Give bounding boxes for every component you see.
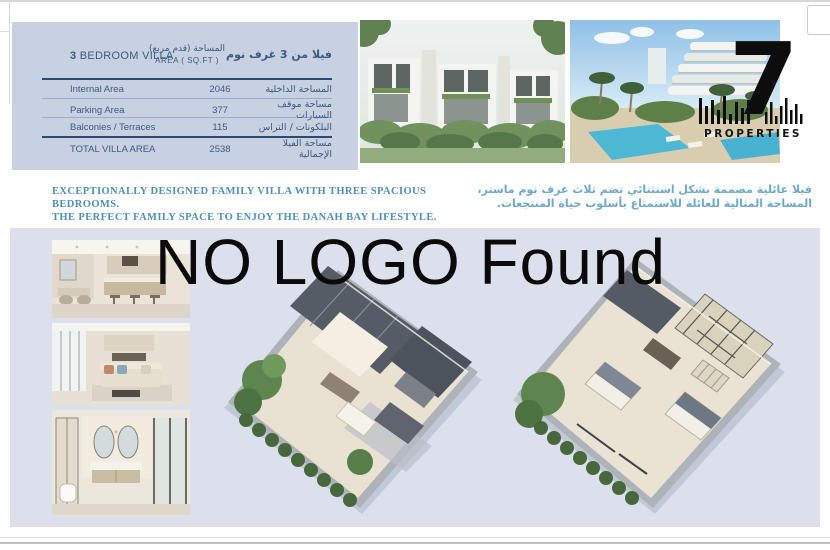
row-label-ar: مساحة الفيلا الإجمالية <box>250 138 332 160</box>
area-spec-table: 3 BEDROOM VILLA المساحة (قدم مربع) AREA … <box>12 22 358 170</box>
logo-seven-glyph: 7 <box>729 26 799 138</box>
tagline-arabic-line2: المساحة المثالية للعائلة للاستمتاع بأسلو… <box>452 197 812 211</box>
table-row-balconies: Balconies / Terraces 115 البلكونات / الت… <box>42 118 332 136</box>
row-value: 2046 <box>190 84 250 95</box>
row-label-ar: المساحة الداخلية <box>250 84 332 95</box>
table-row-internal-area: Internal Area 2046 المساحة الداخلية <box>42 80 332 98</box>
villa-title-ar: فيلا من 3 غرف نوم <box>226 48 332 61</box>
logo-brand-name: PROPERTIES <box>704 128 802 140</box>
bathroom-interior-photo <box>52 410 190 520</box>
row-label-ar: مساحة موقف السيارات <box>250 99 332 121</box>
row-label-en: Parking Area <box>70 105 190 116</box>
table-row-total-area: TOTAL VILLA AREA 2538 مساحة الفيلا الإجم… <box>42 138 332 156</box>
row-label-en: Internal Area <box>70 84 190 95</box>
page-top-edge <box>0 0 830 2</box>
corner-note-box <box>807 5 830 35</box>
brochure-page: 3 BEDROOM VILLA المساحة (قدم مربع) AREA … <box>0 0 830 550</box>
tagline-english-line2: THE PERFECT FAMILY SPACE TO ENJOY THE DA… <box>52 211 472 224</box>
crop-mark-horizontal <box>0 31 10 32</box>
exterior-villas-photo <box>360 20 565 163</box>
seven-properties-logo: 7 PROPERTIES <box>697 26 809 140</box>
tagline-arabic-line1: فيلا عائلية مصممة بشكل استثنائي تضم ثلاث… <box>452 183 812 197</box>
row-label-en: TOTAL VILLA AREA <box>70 144 190 155</box>
window-bottom-edge <box>0 542 830 544</box>
no-logo-watermark: NO LOGO Found <box>155 228 666 296</box>
row-label-ar: البلكونات / التراس <box>250 122 332 133</box>
tagline-english-line1: EXCEPTIONALLY DESIGNED FAMILY VILLA WITH… <box>52 185 472 211</box>
row-label-en: Balconies / Terraces <box>70 122 190 133</box>
tagline-english: EXCEPTIONALLY DESIGNED FAMILY VILLA WITH… <box>52 185 472 224</box>
spec-table-header: 3 BEDROOM VILLA المساحة (قدم مربع) AREA … <box>42 22 332 78</box>
row-value: 377 <box>190 105 250 116</box>
crop-mark-vertical <box>9 0 10 104</box>
living-room-interior-photo <box>52 323 190 410</box>
table-row-parking-area: Parking Area 377 مساحة موقف السيارات <box>42 99 332 117</box>
tagline-arabic: فيلا عائلية مصممة بشكل استثنائي تضم ثلاث… <box>452 183 812 210</box>
row-value: 2538 <box>190 144 250 155</box>
spec-table-content: 3 BEDROOM VILLA المساحة (قدم مربع) AREA … <box>42 22 332 156</box>
row-value: 115 <box>190 122 250 133</box>
page-bottom-line <box>0 537 830 538</box>
